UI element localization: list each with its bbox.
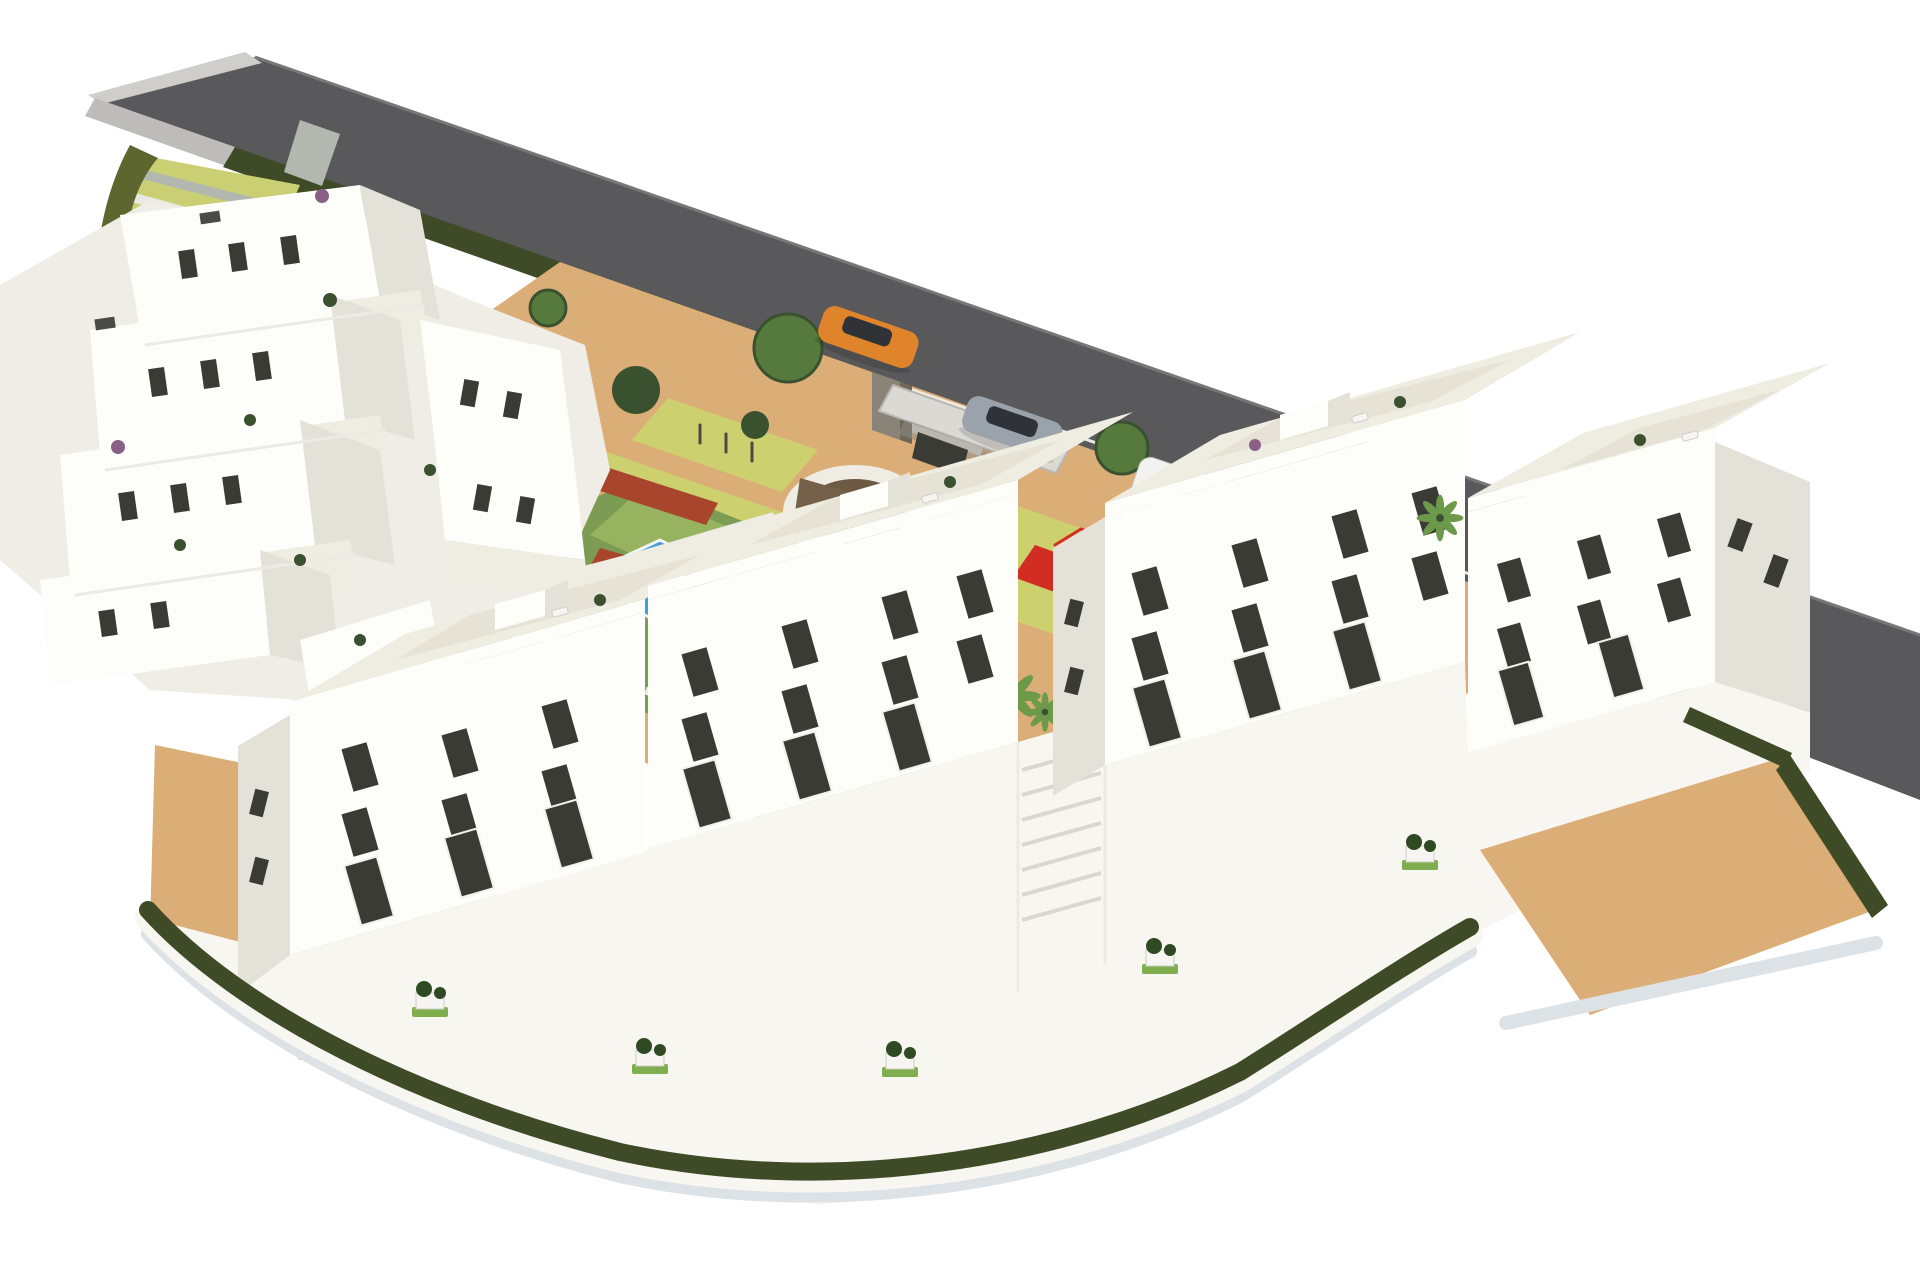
roof-plant — [944, 476, 956, 488]
roof-plant — [1634, 434, 1646, 446]
tree — [530, 290, 566, 326]
terrace-plant — [323, 293, 337, 307]
terrace-plant — [354, 634, 366, 646]
tree — [612, 366, 660, 414]
side-face — [238, 715, 290, 994]
terrace-plant — [424, 464, 436, 476]
side-face — [1715, 442, 1810, 712]
roof-plant — [594, 594, 606, 606]
tree — [741, 411, 769, 439]
front-block-d — [1468, 363, 1830, 752]
terrace-plant — [174, 539, 186, 551]
rooftop-palm-tree — [1417, 495, 1464, 542]
roof-plant — [1249, 439, 1261, 451]
bougainvillea-plant — [111, 440, 125, 454]
roof-plant — [1394, 396, 1406, 408]
terrace-plant — [244, 414, 256, 426]
tree — [754, 314, 822, 382]
architectural-render — [0, 0, 1920, 1280]
bougainvillea-plant — [315, 189, 329, 203]
terrace-plant — [294, 554, 306, 566]
side-face — [1053, 517, 1105, 796]
render-canvas — [0, 0, 1920, 1280]
